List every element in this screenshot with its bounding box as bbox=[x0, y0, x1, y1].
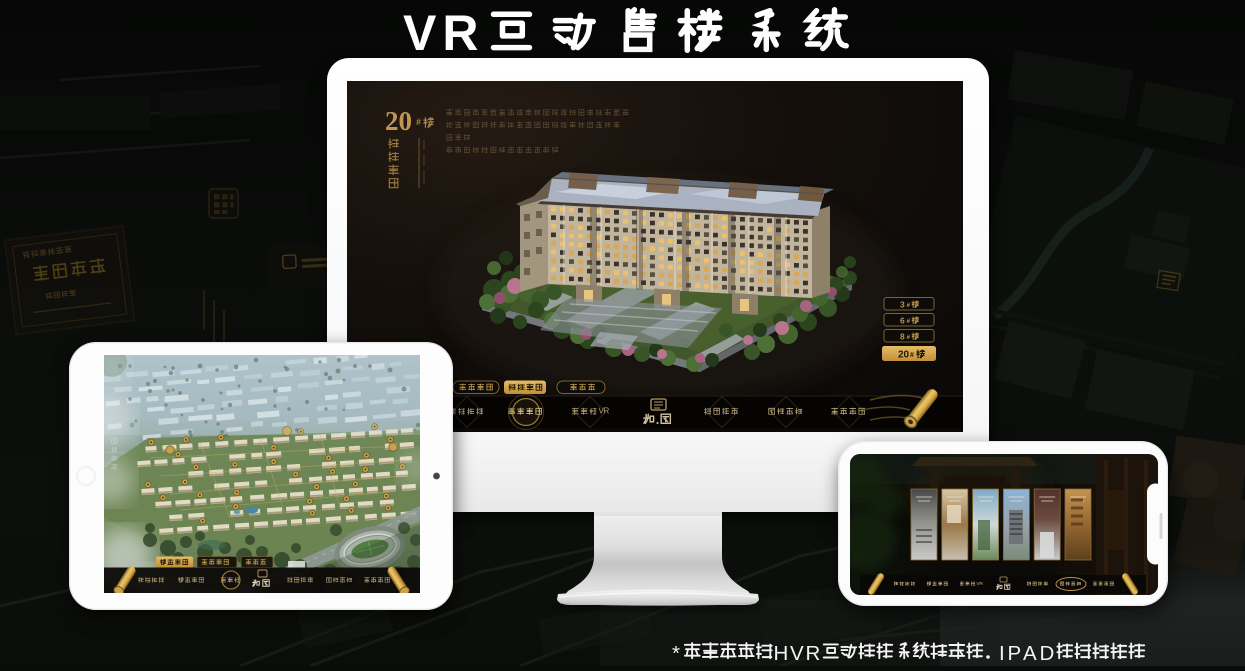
svg-text:D: D bbox=[1040, 642, 1055, 665]
svg-text:VR: VR bbox=[403, 5, 484, 61]
svg-text:#: # bbox=[416, 117, 421, 127]
svg-text:I: I bbox=[999, 642, 1005, 665]
svg-text:R: R bbox=[604, 407, 610, 416]
svg-text:6: 6 bbox=[900, 316, 905, 326]
svg-text:20: 20 bbox=[385, 106, 412, 136]
svg-text:#: # bbox=[910, 352, 914, 359]
svg-text:*: * bbox=[672, 642, 680, 665]
svg-text:P: P bbox=[1008, 642, 1022, 665]
svg-text:R: R bbox=[806, 642, 821, 665]
svg-text:R: R bbox=[979, 581, 983, 587]
svg-text:3: 3 bbox=[900, 300, 905, 310]
svg-text:#: # bbox=[907, 318, 911, 325]
svg-text:20: 20 bbox=[898, 350, 910, 361]
svg-text:V: V bbox=[790, 642, 804, 665]
svg-text:#: # bbox=[907, 334, 911, 341]
svg-text:H: H bbox=[774, 642, 789, 665]
svg-text:#: # bbox=[907, 302, 911, 309]
svg-text:8: 8 bbox=[900, 332, 905, 342]
svg-text:A: A bbox=[1023, 642, 1037, 665]
